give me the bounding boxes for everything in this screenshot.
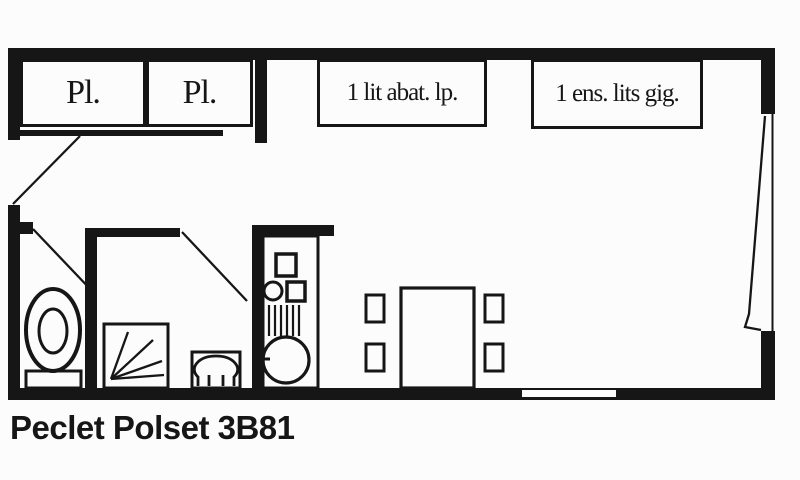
- bathroom-door-leaf: [182, 232, 247, 301]
- living-room-window: [522, 390, 616, 397]
- bed-pullout-set: 1 ens. lits gig.: [531, 59, 703, 129]
- right-wall-upper: [761, 48, 775, 114]
- closet-bed-divider-stub: [255, 59, 267, 143]
- balcony-door-leaf: [745, 116, 765, 330]
- bed-folding: 1 lit abat. lp.: [317, 59, 487, 127]
- toilet-tank: [26, 371, 81, 388]
- cooktop-burner-left: [264, 282, 282, 300]
- wc-door-leaf: [33, 229, 93, 292]
- washbasin-bowl: [194, 356, 238, 386]
- kitchenette: [258, 236, 318, 388]
- kitchen-divider-wall: [252, 225, 263, 388]
- shower-spray-lines: [111, 332, 164, 379]
- toilet: [26, 289, 81, 388]
- entry-door-leaf: [13, 136, 80, 204]
- washbasin: [192, 352, 240, 388]
- closet-front-wall: [20, 130, 223, 136]
- bed-folding-label: 1 lit abat. lp.: [347, 79, 458, 107]
- chair-right-bottom: [485, 344, 503, 371]
- shower: [104, 324, 168, 388]
- toilet-bowl-outer: [26, 289, 80, 371]
- cooktop-burner-top: [276, 254, 296, 276]
- closet-2: Pl.: [146, 59, 253, 127]
- plan-title: Peclet Polset 3B81: [10, 409, 295, 447]
- dining-table: [401, 288, 474, 388]
- bed-pullout-set-label: 1 ens. lits gig.: [555, 80, 679, 108]
- dining-set: [366, 288, 503, 388]
- closet-1-label: Pl.: [66, 74, 100, 112]
- chair-right-top: [485, 295, 503, 322]
- grill-lines: [269, 305, 299, 336]
- shower-room-top-wall: [85, 228, 180, 237]
- bottom-wall: [8, 388, 774, 400]
- kitchen-top-wall: [252, 225, 334, 236]
- left-wall-lower: [8, 205, 20, 400]
- closet-2-label: Pl.: [183, 74, 217, 112]
- chair-left-bottom: [366, 344, 384, 371]
- wc-shower-divider-wall: [85, 228, 97, 388]
- cooktop-burner-right: [287, 282, 305, 301]
- chair-left-top: [366, 295, 384, 322]
- floorplan-page: Pl. Pl. 1 lit abat. lp. 1 ens. lits gig.…: [0, 0, 800, 480]
- entry-door-stop: [20, 222, 33, 234]
- right-wall-lower: [761, 331, 775, 400]
- door-leaves: [13, 116, 765, 330]
- left-wall-upper: [8, 48, 20, 140]
- toilet-bowl-inner: [39, 309, 67, 353]
- closet-1: Pl.: [20, 59, 146, 127]
